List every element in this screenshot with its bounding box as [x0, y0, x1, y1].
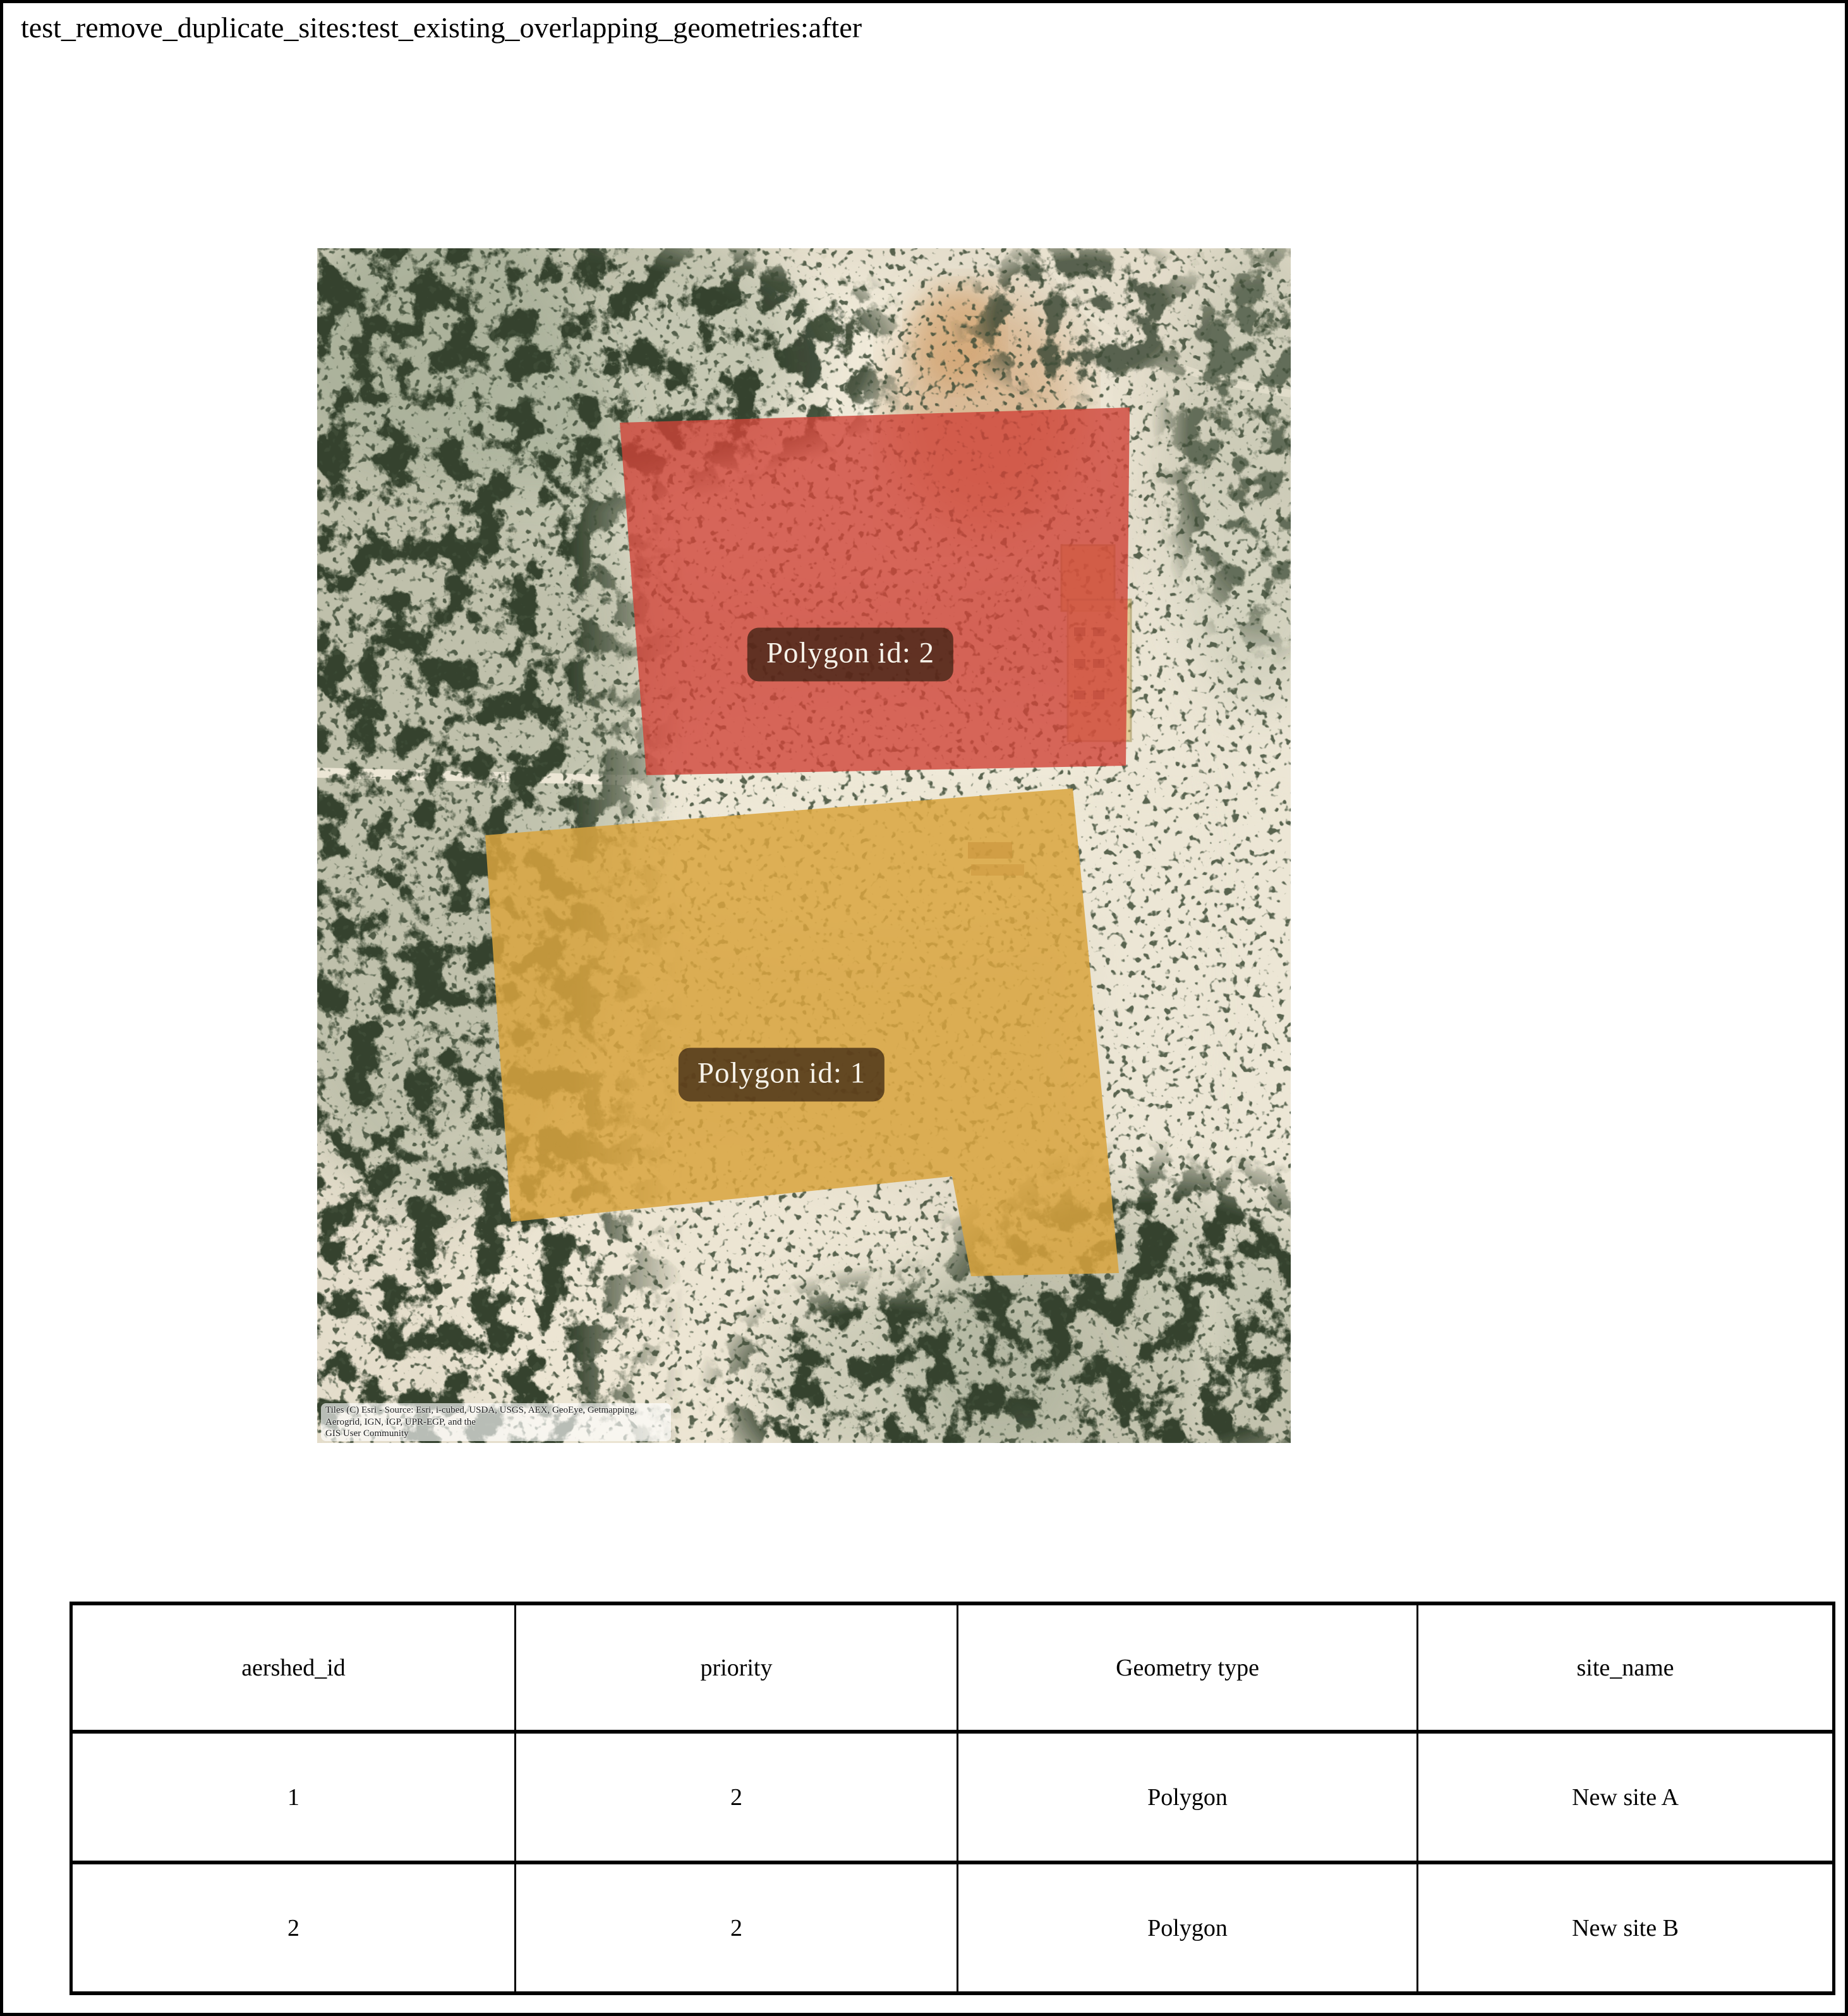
map-attribution: Tiles (C) Esri - Source: Esri, i-cubed, … [321, 1403, 671, 1441]
col-header-geometry-type: Geometry type [958, 1603, 1418, 1732]
cell-geometry-type: Polygon [958, 1862, 1418, 1993]
cell-aershed-id: 2 [71, 1862, 516, 1993]
cell-priority: 2 [516, 1862, 958, 1993]
table-header-row: aershed_id priority Geometry type site_n… [71, 1603, 1834, 1732]
polygon-1-label: Polygon id: 1 [679, 1048, 885, 1102]
attribution-line2: GIS User Community [325, 1428, 409, 1439]
page-title: test_remove_duplicate_sites:test_existin… [21, 11, 862, 44]
cell-site-name: New site A [1418, 1732, 1834, 1862]
cell-priority: 2 [516, 1732, 958, 1862]
cell-site-name: New site B [1418, 1862, 1834, 1993]
sites-table: aershed_id priority Geometry type site_n… [69, 1602, 1835, 1995]
polygon-2 [620, 407, 1130, 775]
table-row: 2 2 Polygon New site B [71, 1862, 1834, 1993]
satellite-image [317, 248, 1291, 1443]
table-row: 1 2 Polygon New site A [71, 1732, 1834, 1862]
satellite-map: Polygon id: 2 Polygon id: 1 Tiles (C) Es… [317, 248, 1291, 1443]
polygon-2-label: Polygon id: 2 [747, 628, 953, 682]
attribution-line1: Tiles (C) Esri - Source: Esri, i-cubed, … [325, 1405, 637, 1427]
cell-geometry-type: Polygon [958, 1732, 1418, 1862]
page: test_remove_duplicate_sites:test_existin… [0, 0, 1848, 2016]
col-header-site-name: site_name [1418, 1603, 1834, 1732]
cell-aershed-id: 1 [71, 1732, 516, 1862]
col-header-priority: priority [516, 1603, 958, 1732]
col-header-aershed-id: aershed_id [71, 1603, 516, 1732]
